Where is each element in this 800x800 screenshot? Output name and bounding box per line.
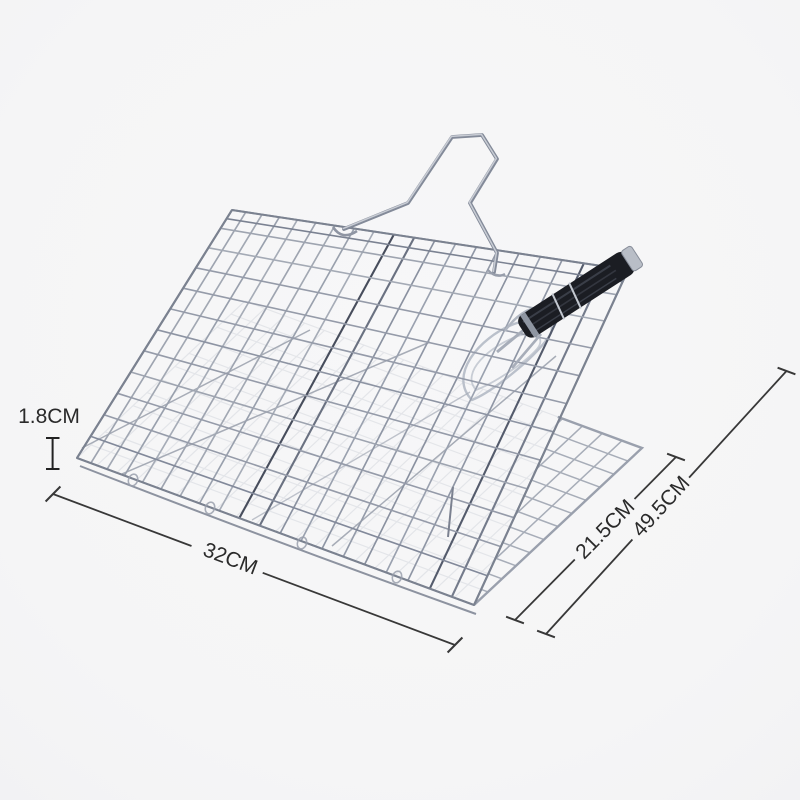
svg-text:1.8CM: 1.8CM xyxy=(18,405,80,428)
